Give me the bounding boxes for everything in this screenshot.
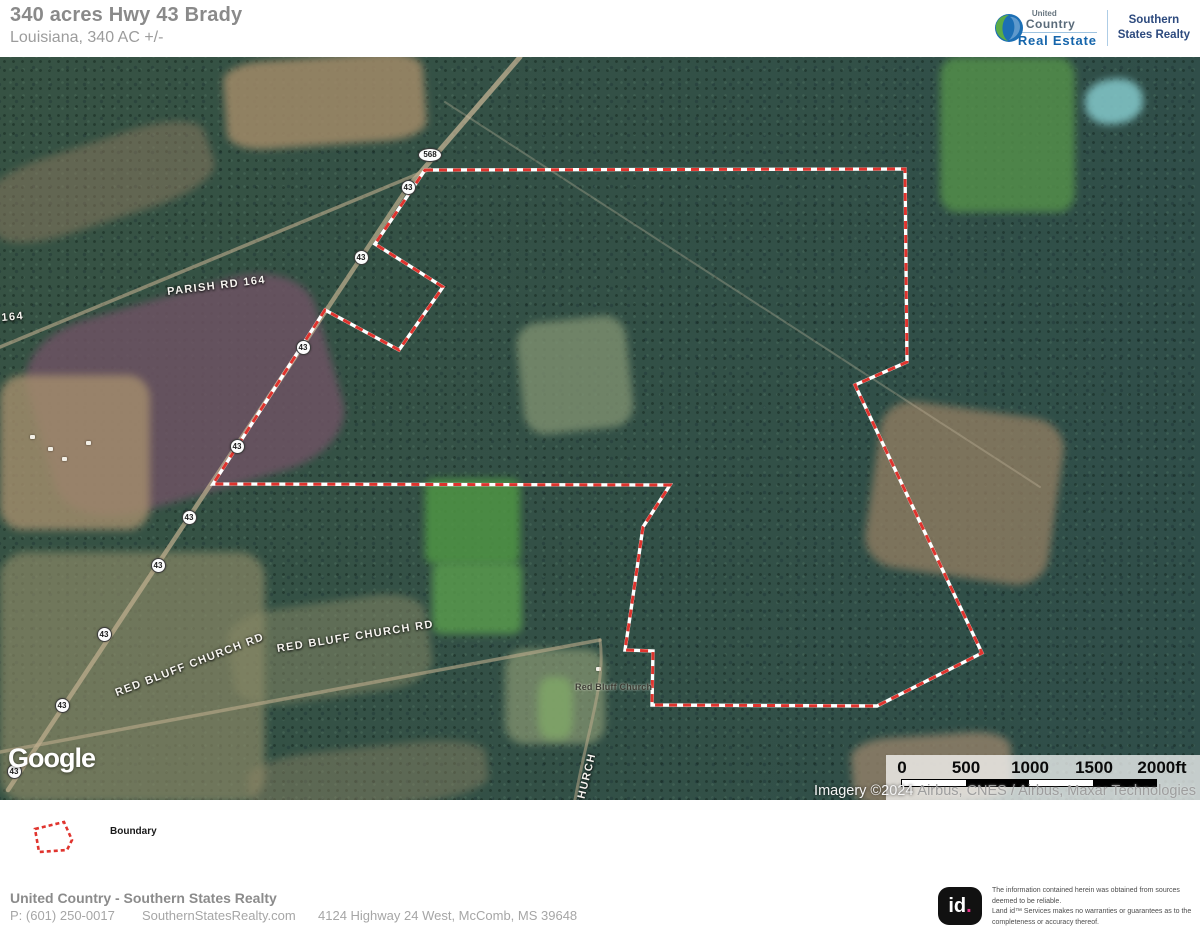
brand-logos: United Country Real Estate Southern Stat…	[994, 5, 1190, 51]
map[interactable]: 568434343434343434343 PARISH RD 164164RE…	[0, 57, 1200, 800]
attribution-prefix: Imagery ©2024	[814, 783, 913, 799]
disclaimer-line: The information contained herein was obt…	[992, 886, 1198, 897]
poi-label: Red Bluff Church	[575, 682, 652, 692]
disclaimer-line: completeness or accuracy thereof.	[992, 918, 1198, 928]
boundary-legend-icon	[26, 818, 78, 856]
land-id-block: id. The information contained herein was…	[938, 886, 1200, 928]
southern-states-realty-logo: Southern States Realty	[1118, 13, 1190, 43]
legend: Boundary	[0, 812, 1200, 860]
road-name-label: 164	[1, 310, 25, 324]
imagery-attribution: Imagery ©2024Airbus, CNES / Airbus, Maxa…	[814, 783, 1196, 799]
brand-divider	[1107, 10, 1108, 46]
scale-tick-label: 1000	[1011, 758, 1049, 778]
uc-country-text: Country	[1026, 18, 1097, 30]
footer-website-link[interactable]: SouthernStatesRealty.com	[142, 908, 296, 923]
globe-leaf-icon	[994, 13, 1024, 43]
scale-tick-label: 500	[952, 758, 980, 778]
scale-tick-label: 2000ft	[1137, 758, 1186, 778]
footer-phone: P: (601) 250-0017	[10, 908, 115, 923]
land-id-logo-text: id	[948, 895, 966, 918]
footer-address: 4124 Highway 24 West, McComb, MS 39648	[318, 908, 577, 923]
scale-tick-label: 0	[897, 758, 906, 778]
attribution-sources: Airbus, CNES / Airbus, Maxar Technologie…	[917, 783, 1196, 799]
partner-line2: States Realty	[1118, 28, 1190, 43]
road-name-label: CHURCH	[573, 752, 598, 800]
page-subtitle: Louisiana, 340 AC +/-	[10, 29, 242, 47]
united-country-wordmark: United Country Real Estate	[1018, 10, 1097, 47]
road-name-label: RED BLUFF CHURCH RD	[276, 618, 435, 655]
road-name-label: PARISH RD 164	[167, 274, 267, 298]
title-block: 340 acres Hwy 43 Brady Louisiana, 340 AC…	[10, 4, 242, 47]
scale-tick-label: 1500	[1075, 758, 1113, 778]
land-id-logo-dot: .	[966, 895, 972, 918]
google-logo[interactable]: Google	[8, 743, 95, 774]
partner-line1: Southern	[1118, 13, 1190, 28]
footer-company: United Country - Southern States Realty	[10, 890, 277, 906]
land-id-disclaimer: The information contained herein was obt…	[992, 886, 1198, 928]
disclaimer-line: deemed to be reliable.	[992, 897, 1198, 908]
page-title: 340 acres Hwy 43 Brady	[10, 4, 242, 27]
uc-real-estate-text: Real Estate	[1018, 32, 1097, 47]
road-name-label: RED BLUFF CHURCH RD	[114, 631, 266, 699]
united-country-logo: United Country Real Estate	[994, 10, 1097, 47]
land-id-logo: id.	[938, 887, 982, 925]
scale-tick-labels: 0500100015002000ft	[886, 758, 1200, 778]
map-labels-layer: PARISH RD 164164RED BLUFF CHURCH RDRED B…	[0, 57, 1200, 800]
disclaimer-line: Land id™ Services makes no warranties or…	[992, 907, 1198, 918]
header: 340 acres Hwy 43 Brady Louisiana, 340 AC…	[0, 0, 1200, 57]
boundary-legend-label: Boundary	[110, 826, 157, 837]
property-map-page: 340 acres Hwy 43 Brady Louisiana, 340 AC…	[0, 0, 1200, 928]
